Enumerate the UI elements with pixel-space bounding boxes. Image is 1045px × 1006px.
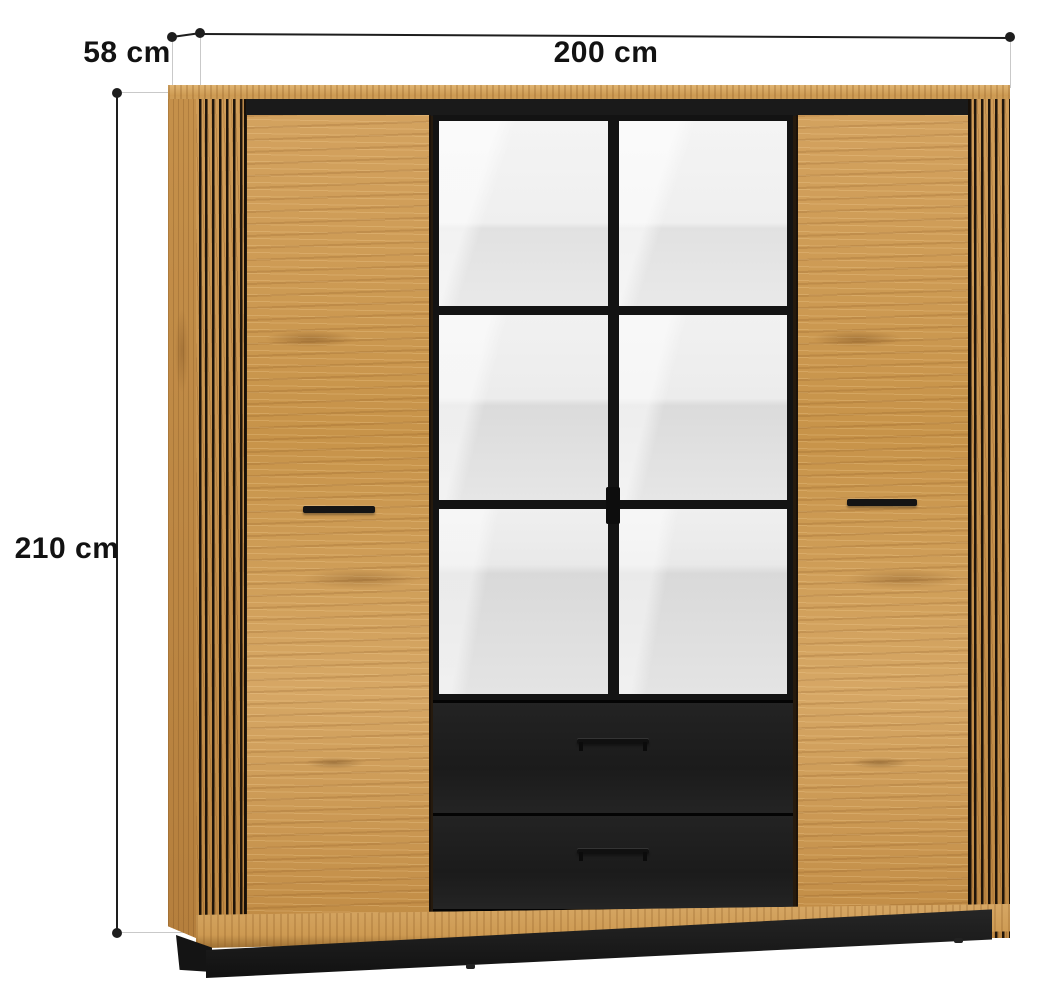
height-dimension-label: 210 cm xyxy=(12,534,122,564)
dimension-endpoint-dot xyxy=(112,928,122,938)
left-slat-panel xyxy=(196,99,246,938)
mirror-door-grid xyxy=(433,115,793,700)
mirror-panel xyxy=(439,121,608,306)
left-wood-door xyxy=(247,115,431,915)
bottom-drawer-handle xyxy=(577,849,649,854)
mirror-panel xyxy=(619,509,788,694)
right-door-handle xyxy=(847,499,917,506)
depth-dimension-label: 58 cm xyxy=(72,38,182,68)
wardrobe-side-panel xyxy=(168,99,196,938)
foot-glide xyxy=(954,938,963,943)
dimension-endpoint-dot xyxy=(1005,32,1015,42)
mirror-panel xyxy=(619,315,788,500)
extension-line xyxy=(1010,42,1011,88)
left-door-handle xyxy=(303,506,375,513)
dimension-endpoint-dot xyxy=(195,28,205,38)
mirror-panel xyxy=(439,509,608,694)
right-wood-door xyxy=(796,115,968,915)
handle-stem xyxy=(643,742,647,751)
height-dimension-line xyxy=(116,93,118,933)
handle-stem xyxy=(579,742,583,751)
bottom-drawer xyxy=(433,816,793,909)
extension-line xyxy=(122,92,168,93)
handle-stem xyxy=(579,852,583,861)
top-trim-strip xyxy=(246,99,968,116)
top-drawer-handle xyxy=(577,739,649,744)
product-dimension-image: 200 cm 58 cm 210 cm xyxy=(0,0,1045,1006)
top-drawer xyxy=(433,703,793,813)
width-dimension-label: 200 cm xyxy=(516,38,696,68)
mirror-door-handle xyxy=(606,487,620,524)
handle-stem xyxy=(643,852,647,861)
mirror-panel xyxy=(619,121,788,306)
wardrobe-top-board xyxy=(168,85,1010,100)
foot-glide xyxy=(466,964,475,969)
dimension-endpoint-dot xyxy=(112,88,122,98)
right-slat-panel xyxy=(968,99,1010,938)
drawer-unit xyxy=(433,700,793,912)
extension-line xyxy=(200,38,201,88)
mirror-panel xyxy=(439,315,608,500)
